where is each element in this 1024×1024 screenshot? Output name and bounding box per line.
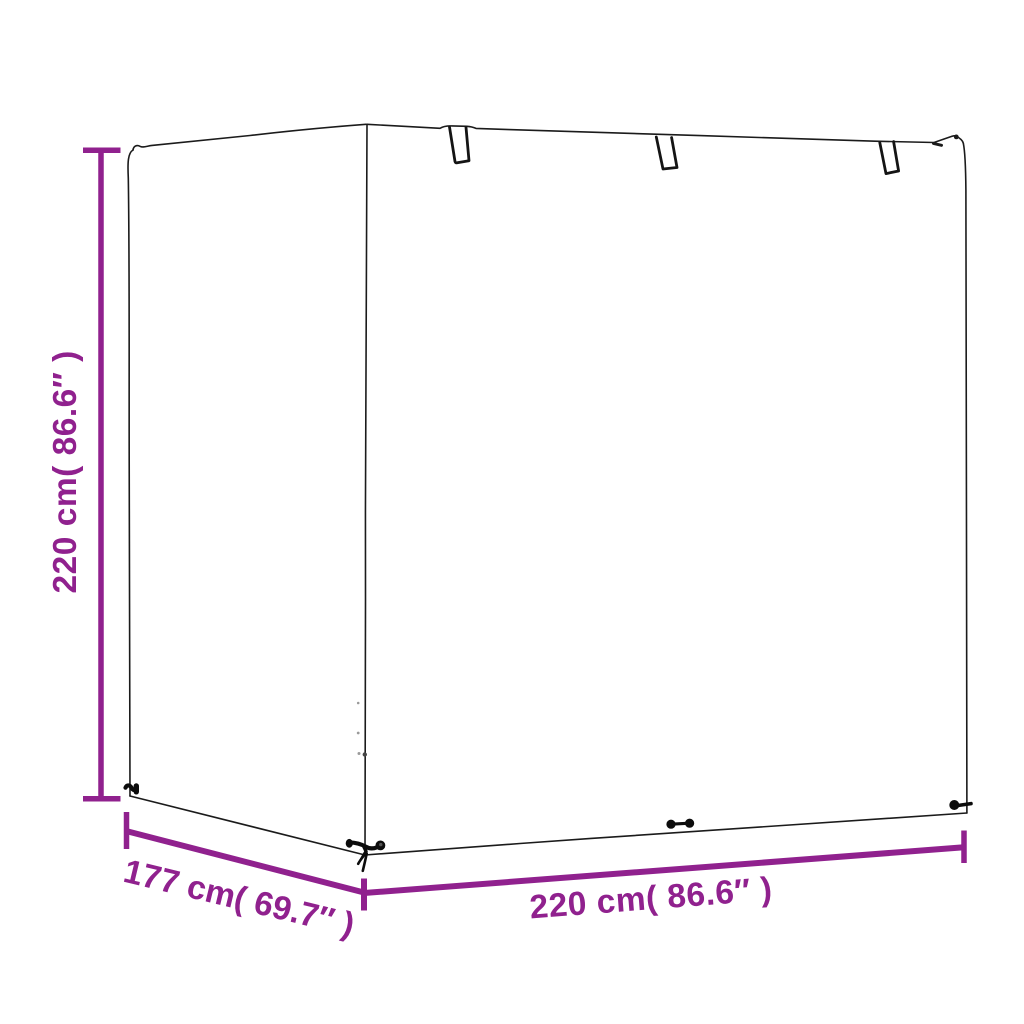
svg-text:177 cm( 69.7″ ): 177 cm( 69.7″ ) bbox=[120, 853, 358, 944]
svg-text:220 cm( 86.6″ ): 220 cm( 86.6″ ) bbox=[47, 350, 84, 593]
